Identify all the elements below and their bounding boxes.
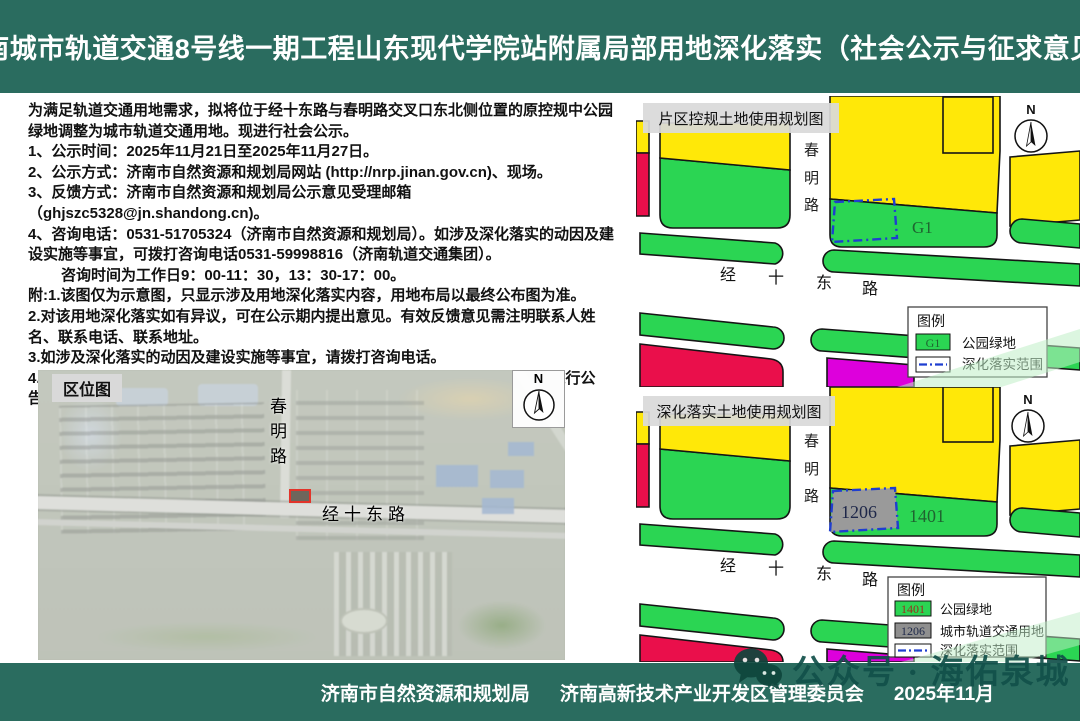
detail-plan-map: 1206 1401 春 明 路 经 十 东 路 图例 1401 公园绿地 120… xyxy=(636,387,1080,662)
legend-label-park: 公园绿地 xyxy=(962,336,1016,351)
legend-title: 图例 xyxy=(897,582,925,598)
road-label-vertical: 春 明 路 xyxy=(804,433,819,505)
district-plan-drawing: G1 春 明 路 经 十 东 路 图例 G1 公园绿地 深化落实范围 xyxy=(636,96,1080,387)
svg-text:明: 明 xyxy=(804,461,819,478)
svg-text:经: 经 xyxy=(720,266,736,284)
location-map: 春 明 路 经十东路 区位图 N xyxy=(38,370,565,660)
compass: N xyxy=(1015,102,1047,152)
parcel-label-1206: 1206 xyxy=(841,502,877,522)
notice-paragraph: 附:1.该图仅为示意图，只显示涉及用地深化落实内容，用地布局以最终公布图为准。 xyxy=(28,286,620,307)
road-label-horizontal: 经十东路 xyxy=(322,500,410,525)
legend-label-park: 公园绿地 xyxy=(940,602,992,617)
notice-paragraph: 3、反馈方式：济南市自然资源和规划局公示意见受理邮箱 （ghjszc5328@j… xyxy=(28,183,620,224)
svg-text:路: 路 xyxy=(862,280,878,298)
north-label: N xyxy=(1026,102,1035,117)
wechat-icon xyxy=(733,647,783,691)
map-title: 片区控规土地使用规划图 xyxy=(643,103,839,133)
compass-icon xyxy=(521,386,557,424)
svg-text:十: 十 xyxy=(768,269,784,287)
page-title: 济南城市轨道交通8号线一期工程山东现代学院站附属局部用地深化落实（社会公示与征求… xyxy=(0,27,1080,66)
detail-plan-drawing: 1206 1401 春 明 路 经 十 东 路 图例 1401 公园绿地 120… xyxy=(636,387,1080,662)
notice-paragraph: 为满足轨道交通用地需求，拟将位于经十东路与春明路交叉口东北侧位置的原控规中公园绿… xyxy=(28,101,620,142)
parcel-label-g1: G1 xyxy=(912,218,933,237)
compass: N xyxy=(1012,392,1044,442)
footer-agency-left: 济南市自然资源和规划局 xyxy=(321,679,530,706)
notice-paragraph: 4、咨询电话：0531-51705324（济南市自然资源和规划局）。如涉及深化落… xyxy=(28,225,620,266)
svg-text:1401: 1401 xyxy=(901,602,925,616)
svg-text:片区控规土地使用规划图: 片区控规土地使用规划图 xyxy=(658,111,823,128)
notice-paragraph: 3.如涉及深化落实的动因及建设实施等事宜，请拨打咨询电话。 xyxy=(28,348,620,369)
svg-text:路: 路 xyxy=(804,197,819,214)
map-title: 深化落实土地使用规划图 xyxy=(643,396,835,426)
road-label-vertical: 春 明 路 xyxy=(270,394,287,469)
north-label: N xyxy=(513,371,564,386)
notice-paragraph: 1、公示时间：2025年11月21日至2025年11月27日。 xyxy=(28,142,620,163)
svg-text:东: 东 xyxy=(816,274,832,292)
svg-text:东: 东 xyxy=(816,565,832,583)
svg-text:路: 路 xyxy=(804,488,819,505)
watermark-text: 公众号 · 海佑泉城 xyxy=(792,645,1071,693)
district-plan-map: G1 春 明 路 经 十 东 路 图例 G1 公园绿地 深化落实范围 xyxy=(636,96,1080,387)
svg-text:G1: G1 xyxy=(926,336,941,350)
svg-text:经: 经 xyxy=(720,557,736,575)
svg-text:深化落实土地使用规划图: 深化落实土地使用规划图 xyxy=(656,404,821,421)
notice-text-block: 为满足轨道交通用地需求，拟将位于经十东路与春明路交叉口东北侧位置的原控规中公园绿… xyxy=(28,101,620,410)
svg-text:路: 路 xyxy=(862,571,878,589)
parcel-label-1401: 1401 xyxy=(909,506,945,526)
location-map-label: 区位图 xyxy=(52,374,122,402)
north-label: N xyxy=(1023,392,1032,407)
svg-text:明: 明 xyxy=(804,170,819,187)
notice-paragraph: 2.对该用地深化落实如有异议，可在公示期内提出意见。有效反馈意见需注明联系人姓名… xyxy=(28,307,620,348)
road-label-vertical: 春 明 路 xyxy=(804,142,819,214)
satellite-texture xyxy=(38,370,565,660)
notice-paragraph: 2、公示方式：济南市自然资源和规划局网站 (http://nrp.jinan.g… xyxy=(28,163,620,184)
svg-text:十: 十 xyxy=(768,560,784,578)
svg-text:1206: 1206 xyxy=(901,624,925,638)
compass: N xyxy=(512,370,565,428)
watermark: 公众号 · 海佑泉城 xyxy=(733,645,1071,693)
public-notice-poster: 济南城市轨道交通8号线一期工程山东现代学院站附属局部用地深化落实（社会公示与征求… xyxy=(0,0,1080,721)
notice-paragraph: 咨询时间为工作日9：00-11：30，13：30-17：00。 xyxy=(28,266,620,287)
svg-text:春: 春 xyxy=(804,142,819,159)
header-bar: 济南城市轨道交通8号线一期工程山东现代学院站附属局部用地深化落实（社会公示与征求… xyxy=(0,0,1080,93)
svg-text:春: 春 xyxy=(804,433,819,450)
site-marker xyxy=(289,489,311,503)
legend-title: 图例 xyxy=(917,313,945,329)
